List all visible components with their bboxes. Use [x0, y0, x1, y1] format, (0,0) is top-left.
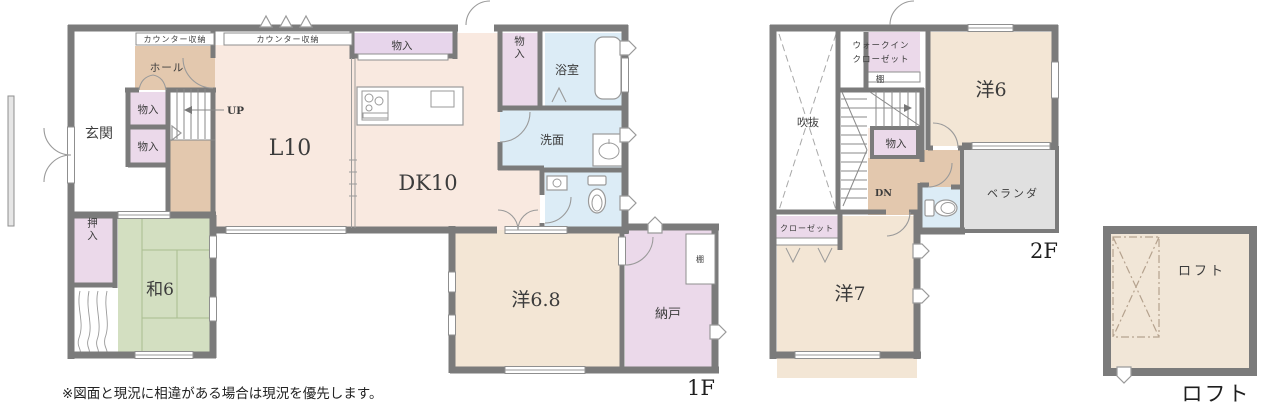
label-storage-2f: 物入 — [886, 137, 907, 150]
caption-2f: 2F — [1030, 239, 1058, 263]
window-western68-west-2 — [449, 315, 456, 335]
window-washitsu-east-2 — [210, 297, 217, 321]
label-dn: DN — [875, 188, 892, 199]
loft — [1107, 230, 1253, 383]
storage-top-sliding — [358, 54, 448, 60]
caption-1f: 1F — [687, 376, 715, 400]
floor-plan-page: 玄関 カウンター収納 カウンター収納 ホール 物入 物入 UP L10 物入 D… — [0, 0, 1280, 415]
label-western-68: 洋6.8 — [511, 289, 560, 311]
roof-vent-icon — [280, 16, 292, 27]
label-counter-storage-2: カウンター収納 — [257, 34, 320, 44]
window-bath-east — [622, 58, 629, 92]
vent-icon — [913, 289, 929, 303]
door-arc-genkan-upper — [44, 128, 71, 155]
closet-shelf — [775, 238, 840, 245]
label-washitsu: 和6 — [146, 280, 174, 300]
label-hall: ホール — [150, 62, 185, 74]
toilet-icon-2f — [925, 200, 957, 216]
hall-2f — [868, 158, 922, 215]
roof-vent-icon — [260, 16, 272, 27]
label-western-6: 洋6 — [975, 79, 1006, 101]
vent-icon — [620, 41, 636, 55]
label-wic-1: ウォークイン — [852, 41, 909, 51]
floor-1f — [8, 30, 715, 370]
vent-icon — [648, 217, 662, 233]
hall-2f-east — [920, 150, 962, 188]
label-void: 吹抜 — [797, 115, 819, 129]
label-western-7: 洋7 — [834, 283, 865, 305]
nando-door-gap — [619, 237, 626, 265]
door-arc-wic — [890, 1, 914, 25]
window-western68-west-1 — [449, 272, 456, 292]
label-storage-2: 物入 — [138, 140, 159, 153]
vent-icon — [1117, 367, 1131, 383]
label-closet-2f: クローゼット — [780, 223, 834, 233]
label-living: L10 — [269, 136, 312, 161]
label-storage-3: 物入 — [513, 35, 525, 61]
vent-icon — [620, 196, 636, 210]
corner-basin-icon — [547, 176, 567, 190]
room-wic-inner — [866, 32, 920, 72]
label-dk: DK10 — [398, 171, 457, 195]
kitchen-counter — [357, 87, 463, 125]
label-nando: 納戸 — [655, 307, 681, 322]
vent-icon — [620, 128, 636, 142]
caption-loft: ロフト — [1182, 382, 1251, 406]
label-storage-1: 物入 — [138, 103, 159, 116]
label-shelf-1f: 棚 — [696, 254, 704, 264]
vent-icon — [710, 325, 726, 339]
label-washroom: 洗面 — [540, 133, 564, 147]
label-storage-top: 物入 — [392, 39, 413, 52]
corridor-1f — [168, 140, 215, 217]
label-veranda: ベランダ — [987, 186, 1039, 200]
label-shelf-2f: 棚 — [876, 74, 885, 85]
label-loft-room: ロフト — [1178, 264, 1226, 279]
disclaimer-note: ※図面と現況に相違がある場合は現況を優先します。 — [62, 386, 382, 401]
window-washitsu-east-1 — [210, 236, 217, 258]
door-arc-backdoor — [466, 1, 490, 25]
vent-icon — [913, 244, 929, 258]
roof-vent-icon — [300, 16, 312, 27]
label-up: UP — [227, 105, 244, 117]
floor-plan-svg: 玄関 カウンター収納 カウンター収納 ホール 物入 物入 UP L10 物入 D… — [0, 0, 1280, 415]
label-wic-2: クローゼット — [852, 54, 909, 65]
door-arc-genkan-lower — [44, 155, 71, 182]
label-bath: 浴室 — [555, 62, 579, 77]
fence-line — [8, 96, 14, 226]
window-western6-east — [1052, 62, 1059, 98]
label-oshiire: 押入 — [86, 217, 98, 243]
wic-shelf — [866, 72, 920, 82]
label-counter-storage-1: カウンター収納 — [144, 34, 207, 44]
room-genkan-lower — [128, 167, 170, 215]
room-western-7-top — [841, 216, 917, 239]
bathtub-icon — [595, 37, 621, 99]
label-genkan: 玄関 — [85, 125, 113, 142]
